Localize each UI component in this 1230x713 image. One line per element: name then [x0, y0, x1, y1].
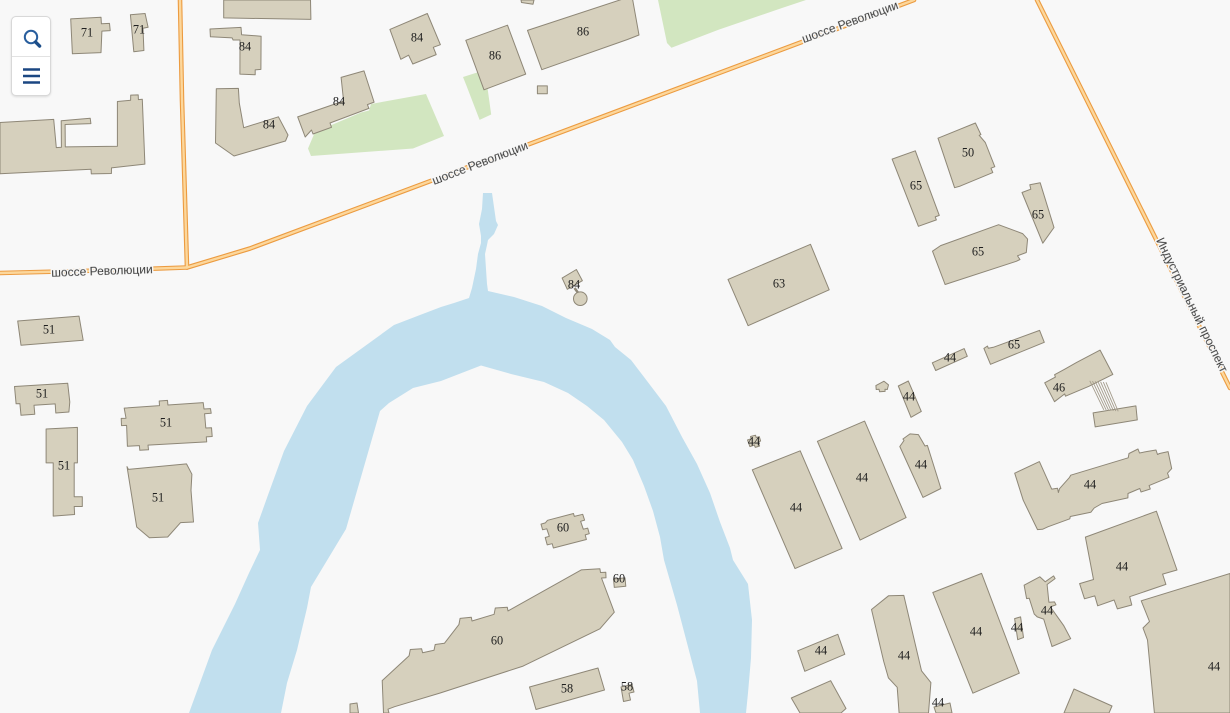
svg-text:71: 71: [133, 22, 145, 36]
svg-text:60: 60: [613, 571, 625, 585]
svg-text:86: 86: [577, 24, 589, 38]
svg-text:44: 44: [815, 643, 827, 657]
svg-text:60: 60: [557, 520, 569, 534]
svg-text:51: 51: [58, 458, 70, 472]
svg-text:84: 84: [411, 30, 423, 44]
svg-text:44: 44: [898, 648, 910, 662]
svg-text:84: 84: [568, 277, 580, 291]
svg-text:44: 44: [970, 624, 982, 638]
svg-text:44: 44: [944, 350, 956, 364]
svg-text:65: 65: [910, 178, 922, 192]
svg-text:84: 84: [263, 117, 275, 131]
svg-text:65: 65: [1008, 337, 1020, 351]
svg-text:46: 46: [1053, 380, 1065, 394]
svg-text:51: 51: [160, 415, 172, 429]
svg-text:71: 71: [81, 25, 93, 39]
svg-text:50: 50: [962, 145, 974, 159]
svg-text:44: 44: [1116, 559, 1128, 573]
svg-text:44: 44: [932, 695, 944, 709]
svg-text:44: 44: [1041, 603, 1053, 617]
svg-text:44: 44: [748, 434, 760, 448]
svg-text:63: 63: [773, 276, 785, 290]
svg-text:86: 86: [489, 48, 501, 62]
svg-text:44: 44: [1084, 477, 1096, 491]
svg-text:84: 84: [239, 39, 251, 53]
svg-text:65: 65: [1032, 207, 1044, 221]
svg-text:44: 44: [1011, 620, 1023, 634]
svg-text:51: 51: [36, 386, 48, 400]
svg-text:44: 44: [1208, 659, 1220, 673]
svg-text:51: 51: [43, 322, 55, 336]
svg-text:58: 58: [561, 681, 573, 695]
svg-text:44: 44: [856, 470, 868, 484]
svg-text:65: 65: [972, 244, 984, 258]
svg-text:44: 44: [790, 500, 802, 514]
svg-text:60: 60: [491, 633, 503, 647]
svg-text:51: 51: [152, 490, 164, 504]
svg-text:44: 44: [903, 389, 915, 403]
svg-text:84: 84: [333, 94, 345, 108]
svg-text:44: 44: [915, 457, 927, 471]
svg-text:58: 58: [621, 679, 633, 693]
